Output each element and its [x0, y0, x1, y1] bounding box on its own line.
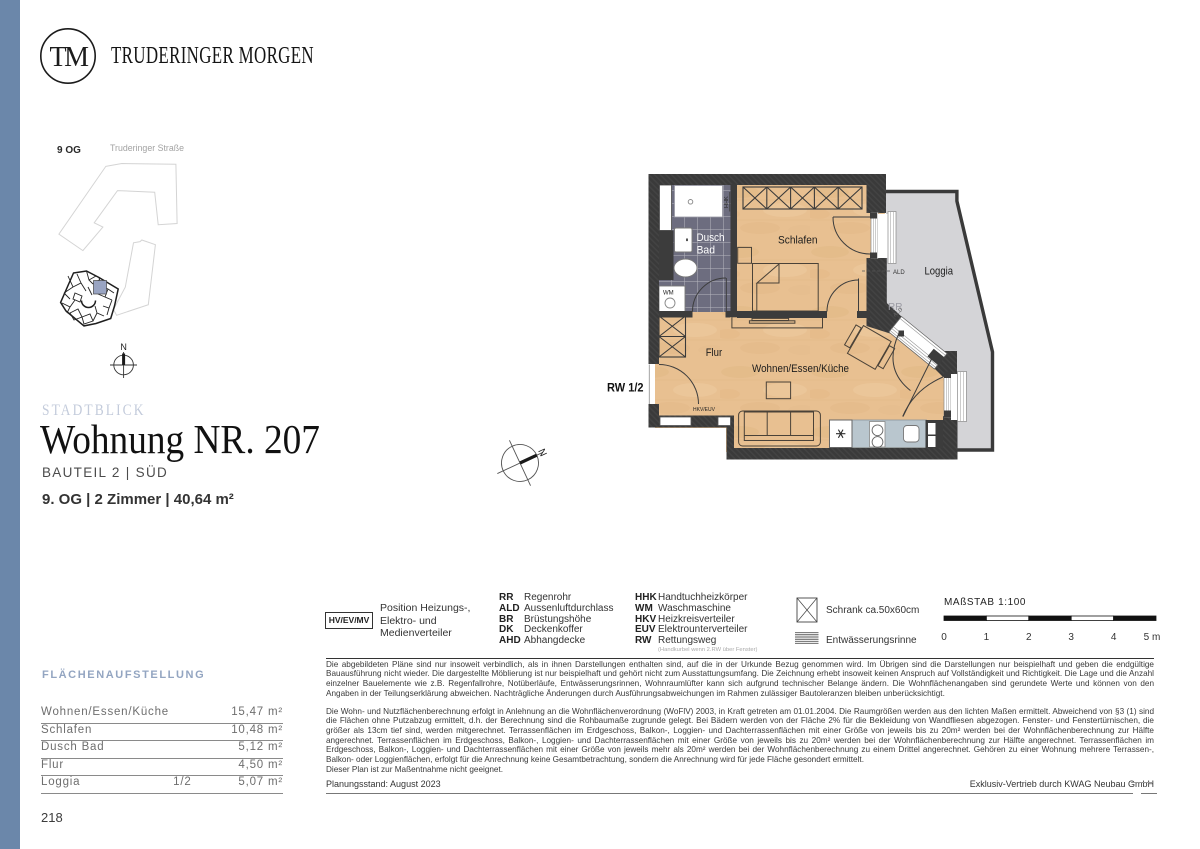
svg-text:HHK: HHK: [724, 196, 730, 208]
svg-text:RW 1/2: RW 1/2: [607, 381, 644, 395]
svg-text:2: 2: [1026, 632, 1032, 643]
svg-text:1: 1: [984, 632, 990, 643]
svg-text:0: 0: [941, 632, 947, 643]
svg-text:4: 4: [1111, 632, 1117, 643]
svg-text:3: 3: [1068, 632, 1074, 643]
svg-text:Dusch: Dusch: [697, 232, 725, 244]
svg-text:Schlafen: Schlafen: [778, 234, 818, 246]
svg-text:ALD: ALD: [893, 270, 905, 276]
svg-text:N: N: [120, 342, 127, 352]
svg-text:TM: TM: [50, 42, 90, 73]
svg-text:Flur: Flur: [706, 347, 723, 359]
svg-text:Wohnen/Essen/Küche: Wohnen/Essen/Küche: [752, 363, 849, 375]
svg-text:HKV/EUV: HKV/EUV: [693, 407, 716, 413]
svg-text:5 m: 5 m: [1144, 632, 1161, 643]
svg-text:WM: WM: [663, 291, 674, 297]
svg-text:Loggia: Loggia: [925, 266, 954, 278]
svg-text:Bad: Bad: [697, 245, 716, 257]
